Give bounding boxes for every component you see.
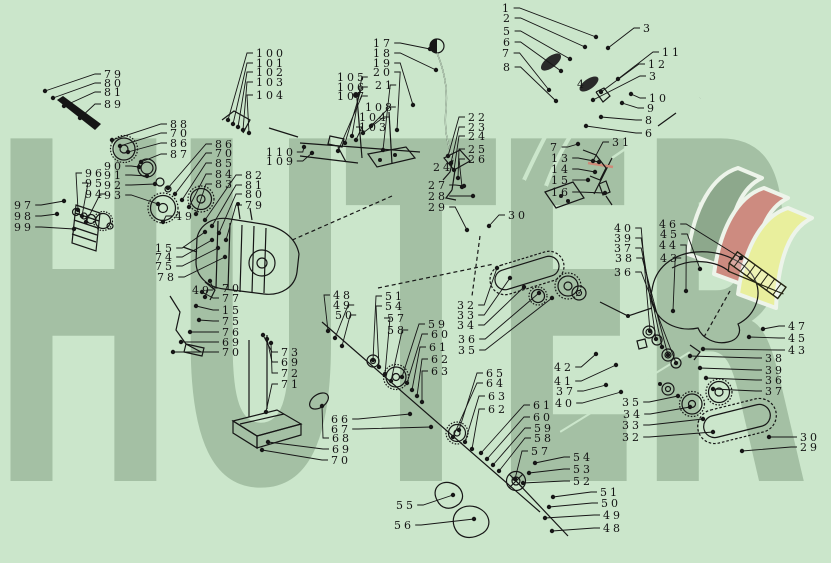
fastener-dot — [264, 410, 268, 414]
leader-lines — [35, 8, 797, 533]
fastener-dot — [462, 184, 466, 188]
fastener-dot — [208, 279, 212, 283]
fastener-dot — [576, 142, 580, 146]
fastener-dot — [224, 238, 228, 242]
fastener-dot — [487, 224, 491, 228]
part-label: 70 — [222, 346, 242, 359]
fastener-dot — [173, 192, 177, 196]
fastener-dot — [333, 336, 337, 340]
part-label: 79 — [245, 199, 265, 212]
fastener-dot — [583, 45, 587, 49]
fastener-dot — [381, 148, 385, 152]
leader-line — [763, 326, 785, 329]
part-label: 3 — [643, 22, 653, 35]
fastener-dot — [648, 329, 652, 333]
fastener-dot — [383, 372, 387, 376]
leader-line — [125, 175, 147, 176]
fastener-dot — [472, 517, 476, 521]
leader-line — [376, 306, 382, 367]
part-label: 55 — [396, 499, 416, 512]
part-label: 48 — [603, 522, 623, 535]
fastener-dot — [126, 150, 130, 154]
part-label: 70 — [331, 454, 351, 467]
fastener-dot — [604, 383, 608, 387]
sprocket — [682, 394, 702, 414]
fastener-dot — [606, 46, 610, 50]
part-label: 49 — [192, 284, 212, 297]
part-label: 21 — [375, 79, 395, 92]
leader-line — [219, 194, 242, 233]
bent-lever — [222, 111, 250, 133]
fastener-dot — [522, 285, 526, 289]
part-label: 49 — [175, 210, 195, 223]
sprocket — [151, 196, 176, 221]
fastener-dot — [340, 344, 344, 348]
part-label: 43 — [788, 344, 808, 357]
leader-line — [553, 492, 597, 497]
drive-chain — [694, 395, 780, 447]
fastener-dot — [179, 340, 183, 344]
fastener-dot — [139, 160, 143, 164]
leader-line — [572, 169, 595, 172]
part-label: 26 — [468, 153, 488, 166]
leader-line — [703, 349, 785, 350]
fastener-dot — [411, 103, 415, 107]
input-shaft — [57, 96, 101, 130]
fastener-dot — [591, 98, 595, 102]
leader-line — [415, 519, 474, 525]
fastener-dot — [203, 218, 207, 222]
part-label: 29 — [800, 441, 820, 454]
leader-line — [176, 240, 212, 257]
fastener-dot — [265, 337, 269, 341]
leader-line — [45, 74, 101, 91]
leader-line — [322, 406, 329, 438]
part-label: 58 — [534, 432, 554, 445]
fastener-dot — [326, 329, 330, 333]
fastener-dot — [711, 387, 715, 391]
fastener-dot — [80, 214, 84, 218]
fastener-dot — [711, 430, 715, 434]
fastener-dot — [405, 381, 409, 385]
leader-line — [472, 409, 485, 449]
fastener-dot — [620, 101, 624, 105]
part-label: 71 — [281, 378, 301, 391]
part-label: 44 — [659, 239, 679, 252]
fastener-dot — [187, 205, 191, 209]
leader-line — [417, 359, 428, 396]
diagram-line-art: 7980818988708687867085848382818079100101… — [0, 0, 831, 563]
part-label: 30 — [508, 209, 528, 222]
fastener-dot — [457, 428, 461, 432]
part-label: 93 — [104, 189, 124, 202]
fastener-dot — [78, 116, 82, 120]
part-label: 83 — [215, 178, 235, 191]
fastener-dot — [594, 352, 598, 356]
fastener-dot — [485, 457, 489, 461]
leader-line — [394, 53, 436, 70]
fastener-dot — [599, 90, 603, 94]
leader-line — [749, 337, 785, 338]
sprocket — [558, 276, 578, 296]
leader-line — [199, 320, 219, 321]
fastener-dot — [62, 199, 66, 203]
leader-line — [247, 95, 253, 133]
leader-line — [577, 385, 606, 391]
fastener-dot — [166, 186, 170, 190]
leader-line — [523, 481, 570, 483]
fastener-dot — [674, 361, 678, 365]
fastener-dot — [629, 92, 633, 96]
fastener-dot — [684, 289, 688, 293]
part-label: 35 — [458, 344, 478, 357]
fastener-dot — [547, 88, 551, 92]
fastener-dot — [660, 345, 664, 349]
fastener-dot — [551, 495, 555, 499]
fastener-dot — [594, 35, 598, 39]
leader-line — [700, 368, 762, 370]
leader-line — [394, 63, 413, 105]
leader-line — [112, 124, 167, 140]
leader-line — [487, 417, 530, 459]
leader-line — [324, 295, 330, 331]
fastener-dot — [619, 390, 623, 394]
leader-line — [489, 215, 505, 226]
fastener-dot — [377, 365, 381, 369]
leader-line — [196, 306, 219, 310]
fastener-dot — [451, 493, 455, 497]
fastener-dot — [739, 256, 743, 260]
fastener-dot — [266, 440, 270, 444]
fastener-dot — [463, 440, 467, 444]
leader-line — [706, 378, 762, 380]
fastener-dot — [465, 228, 469, 232]
fastener-dot — [371, 358, 375, 362]
fastener-dot — [62, 104, 66, 108]
fastener-dot — [216, 246, 220, 250]
fastener-dot — [153, 182, 157, 186]
fastener-dot — [527, 471, 531, 475]
fastener-dot — [701, 417, 705, 421]
fastener-dot — [210, 224, 214, 228]
part-label: 32 — [622, 431, 642, 444]
fastener-dot — [84, 220, 88, 224]
leader-line — [575, 354, 596, 367]
part-label: 8 — [503, 61, 513, 74]
fastener-dot — [395, 128, 399, 132]
part-label: 7 — [502, 47, 512, 60]
part-label: 29 — [428, 201, 448, 214]
leader-line — [742, 447, 797, 451]
leader-line — [549, 503, 598, 507]
leader-line — [631, 94, 646, 98]
fastener-dot — [654, 337, 658, 341]
fastener-dot — [614, 363, 618, 367]
part-label: 63 — [488, 390, 508, 403]
fastener-dot — [586, 178, 590, 182]
fastener-dot — [747, 335, 751, 339]
fastener-dot — [547, 505, 551, 509]
part-label: 36 — [614, 266, 634, 279]
leader-line — [394, 43, 430, 49]
fastener-dot — [603, 191, 607, 195]
small-belt — [307, 390, 332, 413]
part-label: 62 — [488, 403, 508, 416]
fastener-dot — [701, 347, 705, 351]
leader-line — [268, 442, 329, 449]
leader-line — [593, 142, 609, 161]
part-label: 40 — [555, 397, 575, 410]
fastener-dot — [223, 255, 227, 259]
fastener-dot — [470, 447, 474, 451]
fastener-dot — [137, 165, 141, 169]
fastener-dot — [559, 69, 563, 73]
leader-line — [515, 31, 570, 59]
leader-line — [545, 515, 600, 518]
part-label: 24 — [433, 161, 453, 174]
fastener-dot — [599, 115, 603, 119]
part-label: 31 — [612, 136, 632, 149]
fastener-dot — [210, 238, 214, 242]
part-label: 104 — [256, 89, 286, 102]
leader-line — [394, 72, 400, 130]
leader-line — [271, 343, 278, 373]
part-label: 56 — [394, 519, 414, 532]
belt-55 — [435, 482, 462, 508]
leader-line — [586, 126, 642, 133]
part-label: 3 — [649, 70, 659, 83]
upper-chain-drive — [486, 248, 586, 305]
part-label: 89 — [104, 98, 124, 111]
fastener-dot — [350, 134, 354, 138]
fastener-dot — [260, 448, 264, 452]
fastener-dot — [156, 202, 160, 206]
leader-line — [622, 103, 644, 108]
fastener-dot — [767, 435, 771, 439]
leader-line — [478, 287, 524, 325]
fastener-dot — [415, 394, 419, 398]
part-label: 6 — [645, 127, 655, 140]
fastener-dot — [508, 276, 512, 280]
fastener-dot — [456, 176, 460, 180]
fastener-dot — [429, 425, 433, 429]
leader-line — [53, 83, 101, 98]
fastener-dot — [676, 394, 680, 398]
fastener-dot — [597, 160, 601, 164]
fastener-dot — [51, 96, 55, 100]
fastener-dot — [740, 449, 744, 453]
fastener-dot — [336, 149, 340, 153]
leader-line — [352, 427, 431, 429]
leader-line — [178, 257, 225, 277]
fastener-dot — [471, 194, 475, 198]
part-label: 24 — [468, 130, 488, 143]
leader-line — [643, 419, 703, 425]
fastener-dot — [533, 461, 537, 465]
part-label: 109 — [266, 155, 296, 168]
fastener-dot — [698, 267, 702, 271]
fastener-dot — [593, 170, 597, 174]
fastener-dot — [543, 516, 547, 520]
leader-line — [713, 389, 762, 391]
fastener-dot — [521, 481, 525, 485]
fastener-dot — [310, 151, 314, 155]
fastener-dot — [698, 366, 702, 370]
leader-line — [514, 8, 596, 37]
fastener-dot — [241, 128, 245, 132]
fastener-dot — [666, 353, 670, 357]
part-label: 38 — [615, 252, 635, 265]
fastener-dot — [671, 309, 675, 313]
fastener-dot — [389, 379, 393, 383]
depth-stake — [725, 252, 788, 305]
fastener-dot — [537, 291, 541, 295]
fastener-dot — [217, 231, 221, 235]
part-label: 94 — [85, 188, 105, 201]
fastener-dot — [584, 124, 588, 128]
leader-line — [35, 227, 74, 229]
fastener-dot — [161, 220, 165, 224]
fastener-dot — [479, 451, 483, 455]
fastener-dot — [197, 318, 201, 322]
leader-line — [478, 278, 510, 315]
fastener-dot — [688, 405, 692, 409]
fastener-dot — [55, 212, 59, 216]
fastener-dot — [231, 122, 235, 126]
fastener-dot — [145, 174, 149, 178]
leader-line — [499, 438, 531, 471]
fastener-dot — [320, 404, 324, 408]
fastener-dot — [180, 198, 184, 202]
leader-line — [125, 184, 155, 185]
fastener-dot — [513, 477, 517, 481]
belt-56 — [453, 506, 489, 537]
leader-line — [680, 245, 686, 291]
part-label: 50 — [335, 309, 355, 322]
fastener-dot — [247, 131, 251, 135]
fastener-dot — [400, 375, 404, 379]
part-label: 103 — [359, 121, 389, 134]
leader-line — [35, 201, 64, 205]
part-label: 64 — [486, 377, 506, 390]
fastener-dot — [491, 463, 495, 467]
fastener-dot — [171, 350, 175, 354]
leader-line — [601, 117, 642, 120]
fastener-dot — [550, 296, 554, 300]
leader-line — [141, 154, 167, 162]
part-label: 42 — [554, 361, 574, 374]
leader-line — [478, 268, 497, 305]
sprocket — [709, 382, 730, 403]
leader-line — [262, 450, 328, 460]
fastener-dot — [302, 145, 306, 149]
part-label: 4 — [577, 78, 587, 91]
fastener-dot — [704, 376, 708, 380]
fastener-dot — [761, 327, 765, 331]
leader-line — [182, 163, 212, 200]
leader-line — [515, 18, 585, 47]
fastener-dot — [408, 412, 412, 416]
leader-line — [226, 205, 242, 240]
part-label: 63 — [431, 365, 451, 378]
fastener-dot — [72, 227, 76, 231]
fastener-dot — [451, 435, 455, 439]
part-label: 49 — [603, 509, 623, 522]
fastener-dot — [568, 57, 572, 61]
fastener-dot — [236, 125, 240, 129]
leader-line — [176, 232, 205, 248]
leader-line — [449, 207, 467, 230]
part-label: 87 — [170, 148, 190, 161]
part-label: 52 — [573, 475, 593, 488]
leader-line — [572, 158, 599, 162]
fastener-dot — [428, 47, 432, 51]
part-label: 37 — [765, 385, 785, 398]
fastener-dot — [420, 400, 424, 404]
fastener-dot — [434, 68, 438, 72]
part-label: 78 — [157, 271, 177, 284]
leader-line — [552, 528, 600, 531]
fastener-dot — [43, 89, 47, 93]
leader-line — [635, 238, 656, 339]
fastener-dot — [688, 354, 692, 358]
part-label: 107 — [337, 90, 367, 103]
fastener-dot — [110, 138, 114, 142]
part-label: 58 — [387, 324, 407, 337]
leader-line — [422, 371, 428, 402]
fastener-dot — [550, 529, 554, 533]
leader-line — [690, 356, 762, 358]
fastener-dot — [76, 208, 80, 212]
part-label: 60 — [431, 328, 451, 341]
fastener-dot — [261, 333, 265, 337]
rod-dark-section — [658, 113, 676, 126]
fastener-dot — [118, 144, 122, 148]
leader-line — [352, 414, 410, 419]
fastener-dot — [269, 341, 273, 345]
fastener-dot — [354, 138, 358, 142]
fastener-dot — [497, 469, 501, 473]
fastener-dot — [410, 388, 414, 392]
fastener-dot — [226, 118, 230, 122]
leader-line — [529, 469, 570, 473]
leader-line — [35, 214, 57, 216]
part-label: 103 — [256, 76, 286, 89]
part-label: 34 — [457, 319, 477, 332]
part-label: 20 — [373, 66, 393, 79]
fastener-dot — [188, 330, 192, 334]
leader-line — [76, 173, 82, 210]
fastener-dot — [203, 230, 207, 234]
fastener-dot — [343, 141, 347, 145]
fastener-dot — [554, 99, 558, 103]
leader-line — [572, 192, 605, 193]
fastener-dot — [446, 154, 450, 158]
leader-line — [643, 396, 678, 402]
leader-line — [189, 174, 212, 207]
part-label: 16 — [551, 186, 571, 199]
fastener-dot — [495, 266, 499, 270]
part-label: 99 — [14, 221, 34, 234]
leader-line — [643, 432, 713, 437]
part-label: 8 — [645, 114, 655, 127]
leader-line — [266, 384, 278, 412]
parts-diagram-page: HUTER — [0, 0, 831, 563]
part-label: 57 — [531, 445, 551, 458]
part-label: 43 — [660, 252, 680, 265]
part-label: 2 — [503, 12, 513, 25]
leader-line — [459, 159, 465, 187]
